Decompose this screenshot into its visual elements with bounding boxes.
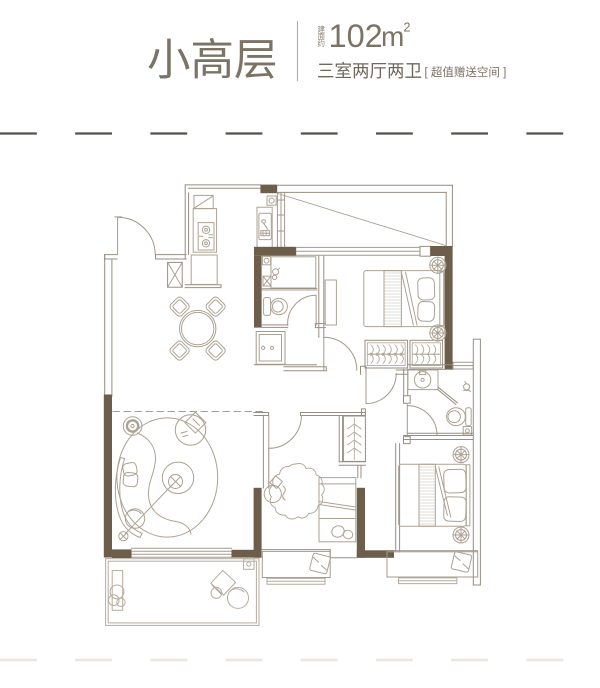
svg-text:m: m	[381, 21, 404, 52]
svg-text:三室两厅两卫: 三室两厅两卫	[317, 61, 422, 81]
svg-text:2: 2	[404, 21, 411, 35]
svg-text:约: 约	[318, 38, 326, 48]
svg-text:[ 超值赠送空间 ]: [ 超值赠送空间 ]	[425, 65, 507, 79]
svg-text:小高层: 小高层	[147, 37, 278, 85]
svg-text:102: 102	[329, 18, 383, 54]
